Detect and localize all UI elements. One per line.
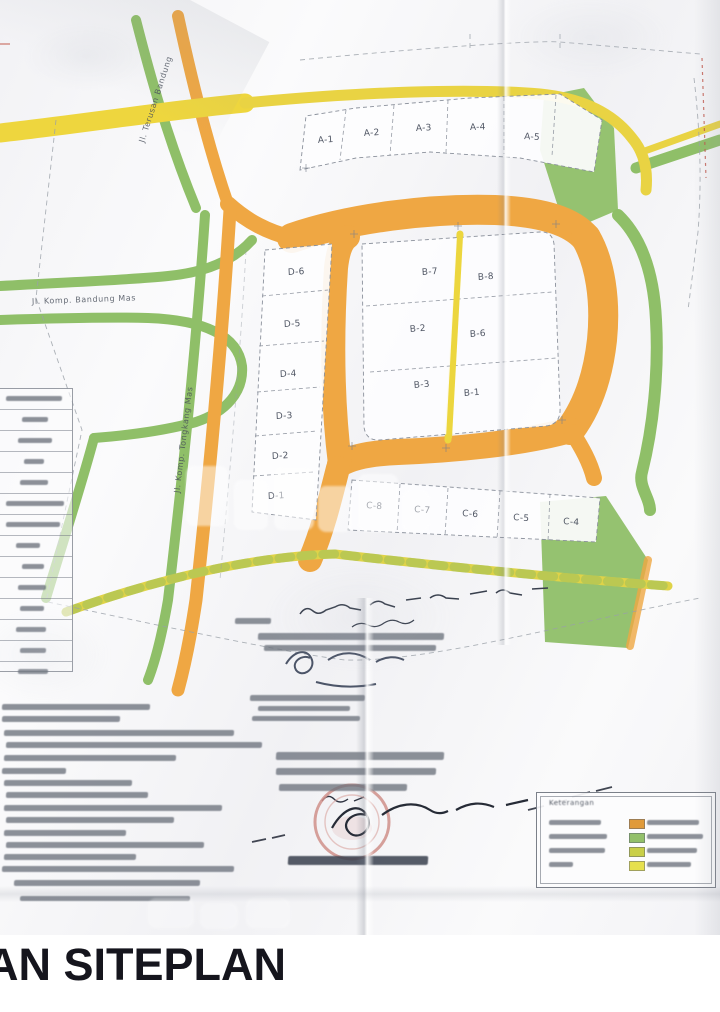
table-cell-smudge bbox=[20, 480, 48, 485]
table-row bbox=[0, 640, 72, 661]
legend-swatch-green bbox=[629, 833, 645, 843]
table-cell-smudge bbox=[18, 669, 48, 674]
table-header-row bbox=[0, 389, 72, 409]
table-cell-smudge bbox=[24, 459, 44, 464]
plot-label-b1: B-1 bbox=[464, 388, 481, 399]
red-stamp bbox=[315, 785, 389, 859]
plot-label-d5: D-5 bbox=[284, 319, 301, 330]
plot-label-c4: C-4 bbox=[563, 517, 580, 528]
road-right-green-band bbox=[618, 215, 657, 510]
table-row bbox=[0, 577, 72, 598]
note-line bbox=[2, 866, 234, 872]
legend-label-smudge bbox=[647, 862, 691, 867]
note-line bbox=[4, 830, 126, 836]
stamp-text-line bbox=[235, 618, 271, 624]
table-cell-smudge bbox=[18, 438, 52, 443]
table-row bbox=[0, 409, 72, 430]
table-cell-smudge bbox=[6, 396, 62, 401]
stamp-text-line bbox=[276, 768, 436, 775]
boundary-top bbox=[300, 42, 700, 60]
note-line bbox=[2, 704, 150, 710]
table-row bbox=[0, 430, 72, 451]
table-row bbox=[0, 514, 72, 535]
table-cell-smudge bbox=[22, 564, 44, 569]
plot-label-a4: A-4 bbox=[470, 122, 486, 133]
parcel-strip-a bbox=[300, 94, 602, 172]
note-line bbox=[6, 742, 262, 748]
legend-title: Keterangan bbox=[549, 799, 594, 807]
stamp-text-line bbox=[252, 716, 360, 721]
plot-label-d2: D-2 bbox=[272, 451, 289, 462]
table-cell-smudge bbox=[6, 501, 64, 506]
plot-label-d4: D-4 bbox=[280, 369, 297, 380]
note-line bbox=[2, 768, 66, 774]
stamp-text-line bbox=[276, 752, 445, 760]
legend-swatch-yellow bbox=[629, 861, 645, 871]
stamp-text-line bbox=[258, 706, 350, 711]
plot-label-a5: A-5 bbox=[524, 132, 541, 143]
page-title: AN SITEPLAN bbox=[0, 939, 286, 991]
legend-label-smudge bbox=[549, 834, 607, 839]
table-cell-smudge bbox=[16, 543, 40, 548]
legend-label-smudge bbox=[549, 848, 605, 853]
note-line bbox=[20, 896, 190, 901]
plot-label-b3: B-3 bbox=[413, 380, 430, 391]
table-row bbox=[0, 535, 72, 556]
note-line bbox=[6, 792, 148, 798]
table-row bbox=[0, 598, 72, 619]
signature-upper bbox=[286, 652, 404, 686]
legend-label-smudge bbox=[647, 834, 703, 839]
note-line bbox=[4, 854, 136, 860]
table-cell-smudge bbox=[20, 606, 44, 611]
loop-road-right bbox=[570, 238, 603, 430]
measurement-table bbox=[0, 388, 73, 672]
plot-label-d1: D-1 bbox=[268, 491, 285, 502]
note-line bbox=[4, 805, 222, 811]
table-row bbox=[0, 472, 72, 493]
table-row bbox=[0, 661, 72, 682]
table-row bbox=[0, 556, 72, 577]
parcels bbox=[252, 94, 602, 542]
legend-label-smudge bbox=[647, 820, 699, 825]
plot-label-a2: A-2 bbox=[364, 128, 381, 139]
note-line bbox=[4, 780, 132, 786]
legend-label-smudge bbox=[647, 848, 697, 853]
plot-label-d6: D-6 bbox=[288, 267, 305, 278]
note-line bbox=[6, 817, 174, 823]
boundary-right bbox=[688, 78, 700, 310]
note-line bbox=[4, 730, 234, 736]
street-label-horizontal: Jl. Komp. Bandung Mas bbox=[31, 293, 136, 306]
plot-label-d3: D-3 bbox=[276, 411, 293, 422]
stamp-text-line bbox=[279, 784, 407, 791]
table-cell-smudge bbox=[6, 522, 60, 527]
loop-road-left bbox=[333, 237, 348, 464]
note-line bbox=[6, 842, 204, 848]
legend-label-smudge bbox=[549, 862, 573, 867]
stamp-text-line bbox=[258, 633, 444, 640]
legend-box: Keterangan bbox=[536, 792, 716, 888]
plot-label-b8: B-8 bbox=[478, 272, 495, 283]
plot-label-a3: A-3 bbox=[416, 123, 432, 134]
table-cell-smudge bbox=[18, 585, 46, 590]
stamp-text-line bbox=[264, 645, 436, 651]
legend-label-smudge bbox=[549, 820, 601, 825]
plot-label-b2: B-2 bbox=[409, 324, 426, 335]
table-cell-smudge bbox=[16, 627, 46, 632]
note-line bbox=[4, 755, 176, 761]
doc-number-handwriting bbox=[300, 588, 548, 614]
parcel-column-d bbox=[252, 244, 332, 520]
table-cell-smudge bbox=[20, 648, 46, 653]
plot-label-a1: A-1 bbox=[318, 135, 335, 146]
plot-label-c6: C-6 bbox=[462, 509, 479, 520]
table-row bbox=[0, 451, 72, 472]
road-horizontal-green-upper bbox=[0, 240, 252, 286]
plot-label-c5: C-5 bbox=[513, 513, 530, 524]
scanned-siteplan: A-1 A-2 A-3 A-4 A-5 B-7 B-8 B-2 B-6 B-3 … bbox=[0, 0, 720, 935]
doc-number-line2 bbox=[352, 620, 414, 627]
note-line bbox=[14, 880, 200, 886]
plot-label-c8: C-8 bbox=[366, 501, 383, 512]
official-name-line bbox=[288, 856, 429, 865]
legend-inner-border bbox=[540, 796, 712, 884]
caption-bar: AN SITEPLAN bbox=[0, 935, 720, 1012]
legend-swatch-orange bbox=[629, 819, 645, 829]
plot-label-b7: B-7 bbox=[422, 267, 439, 278]
plot-label-c7: C-7 bbox=[414, 505, 431, 516]
stamp-text-line bbox=[250, 695, 365, 701]
siteplan-page: A-1 A-2 A-3 A-4 A-5 B-7 B-8 B-2 B-6 B-3 … bbox=[0, 0, 720, 1012]
plot-label-b6: B-6 bbox=[470, 329, 487, 340]
loop-stub-right bbox=[572, 432, 594, 478]
note-line bbox=[2, 716, 120, 722]
table-cell-smudge bbox=[22, 417, 48, 422]
legend-swatch-yellowgreen bbox=[629, 847, 645, 857]
table-row bbox=[0, 619, 72, 640]
table-row bbox=[0, 493, 72, 514]
